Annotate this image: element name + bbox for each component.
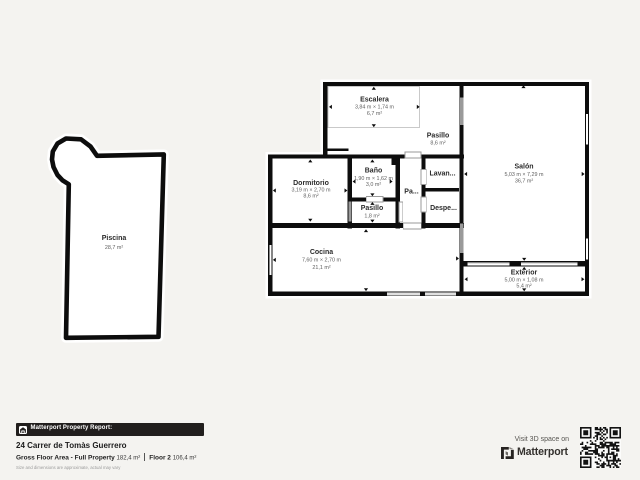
- svg-text:Escalera: Escalera: [360, 96, 389, 103]
- svg-text:36,7 m²: 36,7 m²: [515, 178, 533, 184]
- svg-text:7,60 m × 2,70 m: 7,60 m × 2,70 m: [302, 258, 342, 264]
- svg-text:8,6 m²: 8,6 m²: [430, 141, 445, 147]
- svg-text:Baño: Baño: [365, 168, 383, 175]
- svg-text:Pasillo: Pasillo: [427, 133, 450, 140]
- svg-text:3,84 m × 1,74 m: 3,84 m × 1,74 m: [355, 104, 395, 110]
- svg-text:21,1 m²: 21,1 m²: [312, 265, 330, 271]
- svg-text:Dormitorio: Dormitorio: [293, 180, 329, 187]
- svg-text:5,03 m × 7,29 m: 5,03 m × 7,29 m: [504, 172, 544, 178]
- svg-text:8,6 m²: 8,6 m²: [303, 194, 318, 200]
- svg-text:28,7 m²: 28,7 m²: [105, 245, 123, 251]
- svg-text:Lavan...: Lavan...: [429, 171, 455, 178]
- svg-text:Pasillo: Pasillo: [361, 205, 384, 212]
- svg-text:1,8 m²: 1,8 m²: [364, 213, 379, 219]
- svg-text:Pa...: Pa...: [404, 189, 418, 196]
- svg-text:Cocina: Cocina: [310, 249, 333, 256]
- svg-text:3,0 m²: 3,0 m²: [366, 182, 381, 188]
- svg-text:Piscina: Piscina: [102, 235, 127, 242]
- svg-text:Salón: Salón: [514, 164, 533, 171]
- svg-text:6,7 m²: 6,7 m²: [367, 111, 382, 117]
- svg-text:Despe...: Despe...: [430, 205, 457, 212]
- svg-text:5,4 m²: 5,4 m²: [516, 284, 531, 290]
- svg-text:Exterior: Exterior: [511, 270, 538, 277]
